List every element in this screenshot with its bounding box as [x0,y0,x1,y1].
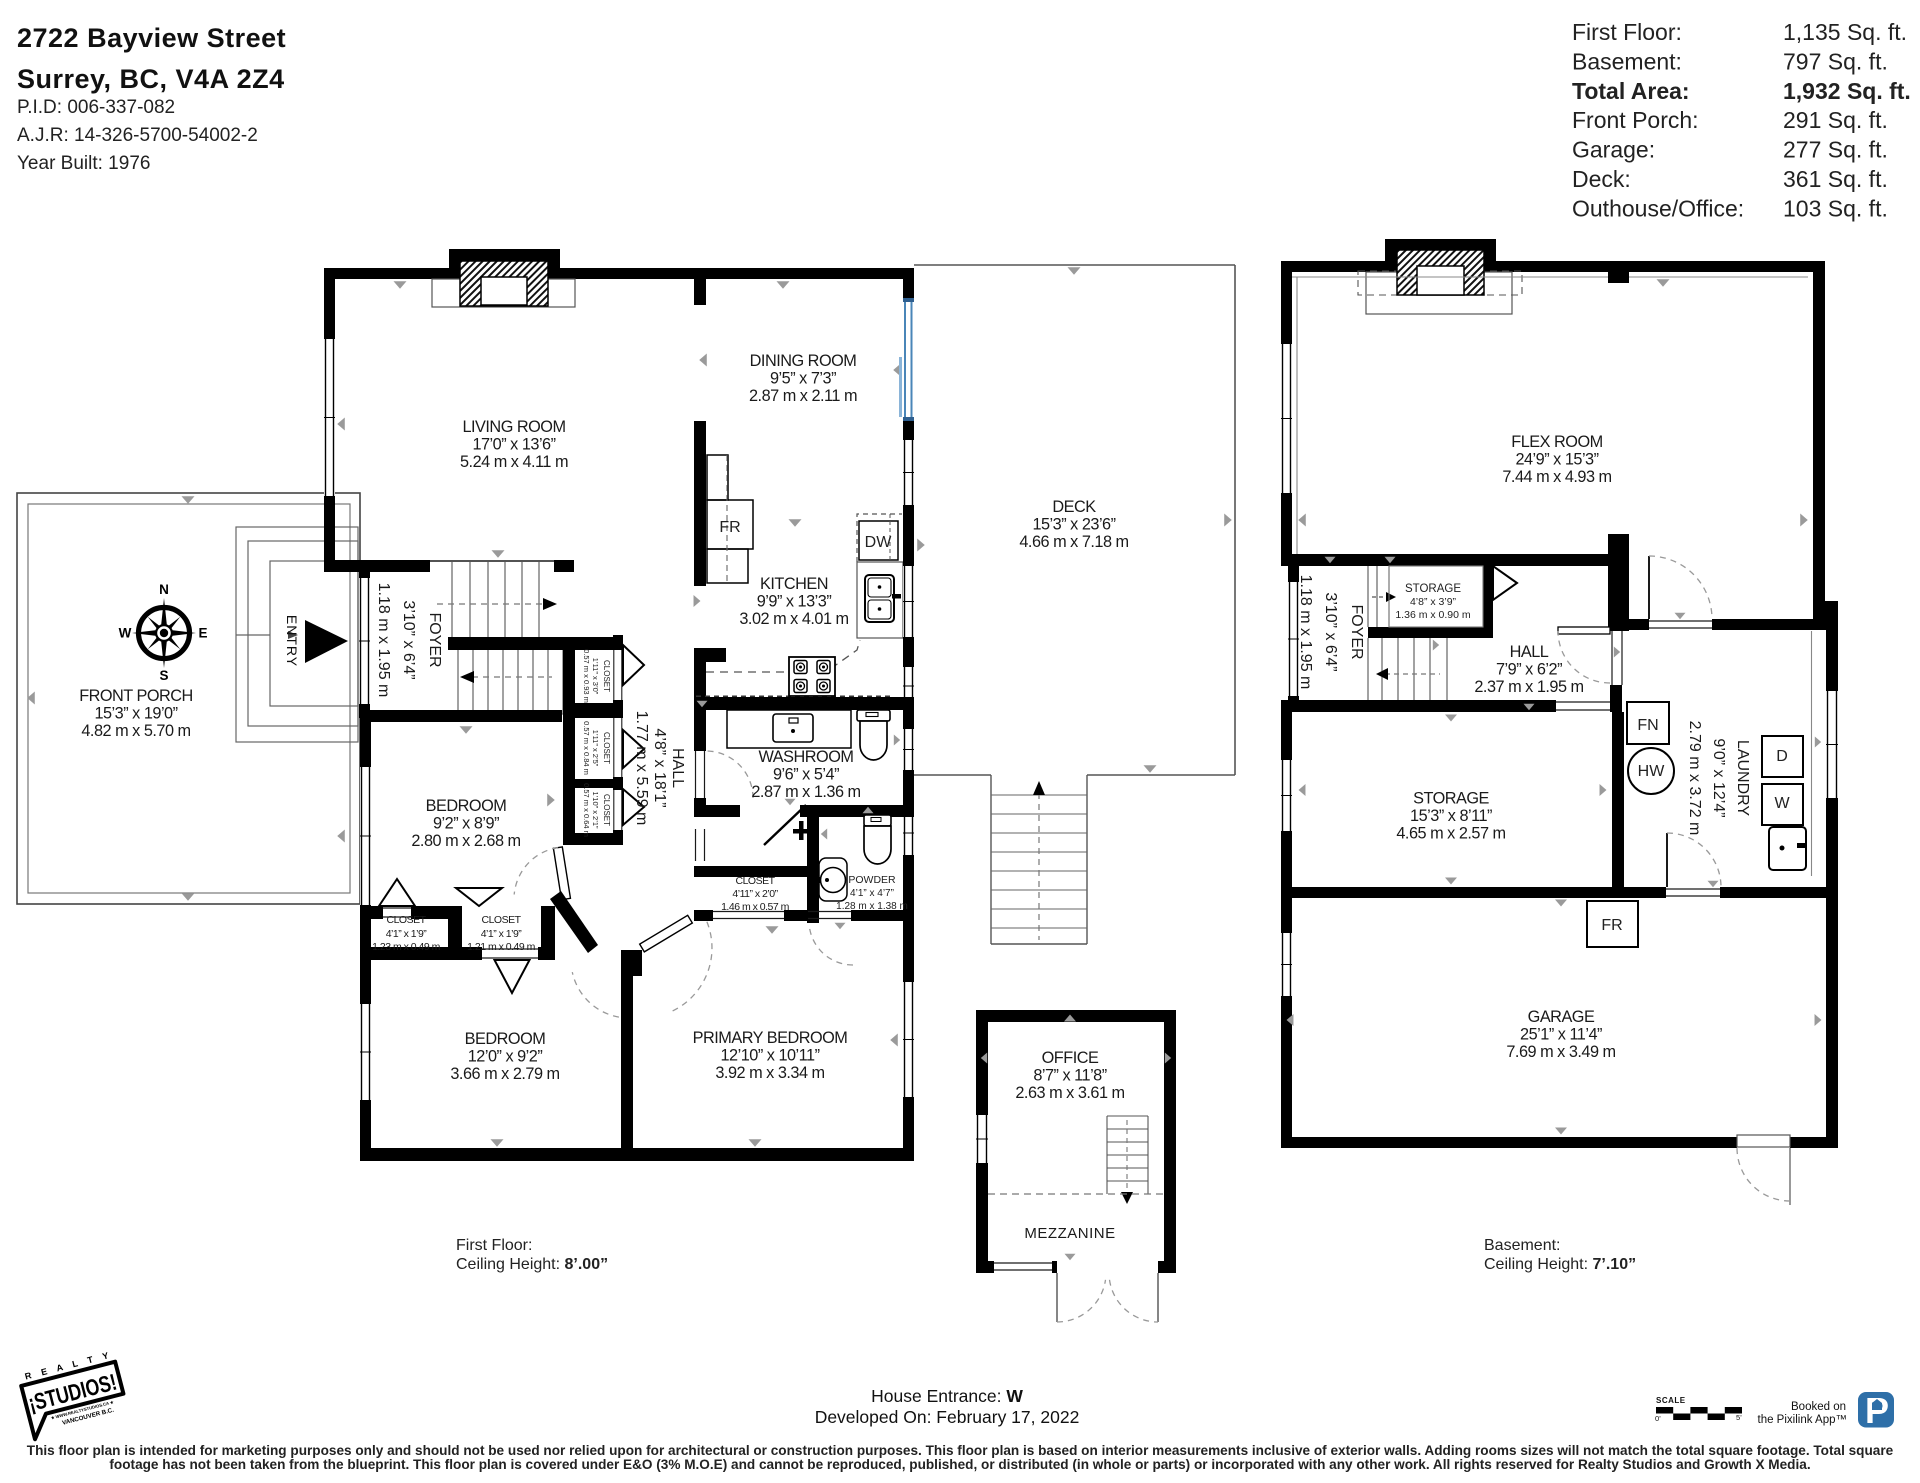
svg-text:15’3” x 19’0”: 15’3” x 19’0” [94,705,177,723]
svg-text:POWDER: POWDER [848,874,896,886]
svg-text:BEDROOM: BEDROOM [465,1030,546,1048]
svg-text:12’0” x 9’2”: 12’0” x 9’2” [468,1048,543,1066]
svg-text:1’11” x 2’5”: 1’11” x 2’5” [591,730,600,767]
svg-text:0.57 m x 0.93 m: 0.57 m x 0.93 m [582,649,591,703]
svg-text:S: S [159,668,168,683]
svg-text:FOYER: FOYER [426,612,443,667]
svg-text:A.J.R: 14-326-5700-54002-2: A.J.R: 14-326-5700-54002-2 [17,125,258,146]
svg-text:2722 Bayview Street: 2722 Bayview Street [17,23,286,53]
svg-text:FOYER: FOYER [1348,604,1365,659]
svg-text:2.79 m x 3.72 m: 2.79 m x 3.72 m [1686,721,1703,836]
svg-text:1.36 m x 0.90 m: 1.36 m x 0.90 m [1395,609,1471,621]
svg-text:STORAGE: STORAGE [1413,790,1489,808]
svg-text:0’: 0’ [1655,1414,1661,1423]
svg-text:15’3” x 8’11”: 15’3” x 8’11” [1410,807,1492,825]
svg-text:9’0” x 12’4”: 9’0” x 12’4” [1710,738,1727,817]
svg-text:DECK: DECK [1052,498,1096,516]
svg-text:9’6” x 5’4”: 9’6” x 5’4” [773,766,839,784]
svg-text:24’9” x 15’3”: 24’9” x 15’3” [1515,451,1598,469]
svg-text:797 Sq. ft.: 797 Sq. ft. [1783,48,1888,74]
svg-text:House Entrance: W: House Entrance: W [871,1386,1023,1406]
svg-text:footage has not been taken fro: footage has not been taken from the blue… [109,1457,1810,1472]
svg-text:4.82 m x 5.70 m: 4.82 m x 5.70 m [81,722,190,740]
svg-text:0.57 m x 0.84 m: 0.57 m x 0.84 m [582,721,591,775]
svg-text:5’: 5’ [1736,1413,1742,1422]
svg-text:277 Sq. ft.: 277 Sq. ft. [1783,137,1888,163]
svg-text:P: P [1865,1390,1889,1431]
svg-text:Deck:: Deck: [1572,166,1631,192]
svg-text:STORAGE: STORAGE [1405,583,1461,595]
svg-text:3.02 m x 4.01 m: 3.02 m x 4.01 m [739,610,848,628]
svg-text:4’1” x 1’9”: 4’1” x 1’9” [481,928,523,940]
svg-text:3’10” x 6’4”: 3’10” x 6’4” [400,600,417,679]
svg-text:291 Sq. ft.: 291 Sq. ft. [1783,107,1888,133]
svg-text:4’1” x 4’7”: 4’1” x 4’7” [850,888,894,899]
svg-text:4’1” x 1’9”: 4’1” x 1’9” [386,928,428,940]
svg-text:9’9” x 13’3”: 9’9” x 13’3” [757,593,832,611]
svg-text:KITCHEN: KITCHEN [760,575,828,593]
svg-text:DINING ROOM: DINING ROOM [750,352,857,370]
svg-text:Surrey, BC, V4A 2Z4: Surrey, BC, V4A 2Z4 [17,64,285,94]
svg-text:E: E [198,626,207,641]
svg-text:1.18 m x 1.95 m: 1.18 m x 1.95 m [1297,575,1314,690]
svg-text:CLOSET: CLOSET [602,794,611,826]
svg-text:HW: HW [1638,763,1666,780]
svg-text:First Floor:: First Floor: [1572,19,1682,45]
svg-text:Total Area:: Total Area: [1572,78,1690,104]
svg-text:CLOSET: CLOSET [481,914,521,926]
svg-text:7.69 m x 3.49 m: 7.69 m x 3.49 m [1506,1043,1615,1061]
svg-text:2.80 m x 2.68 m: 2.80 m x 2.68 m [411,832,520,850]
svg-text:2.63 m x 3.61 m: 2.63 m x 3.61 m [1015,1084,1124,1102]
svg-text:1.77 m x 5.59 m: 1.77 m x 5.59 m [633,711,650,826]
svg-text:First Floor:: First Floor: [456,1237,532,1254]
svg-text:CLOSET: CLOSET [386,914,426,926]
svg-text:4’11” x 2’0”: 4’11” x 2’0” [732,888,778,900]
svg-text:1’10” x 2’1”: 1’10” x 2’1” [591,791,600,829]
svg-text:FLEX ROOM: FLEX ROOM [1511,433,1602,451]
svg-text:This floor plan is intended fo: This floor plan is intended for marketin… [27,1443,1894,1458]
svg-text:361 Sq. ft.: 361 Sq. ft. [1783,166,1888,192]
svg-text:1,932 Sq. ft.: 1,932 Sq. ft. [1783,78,1911,104]
svg-text:ENTRY: ENTRY [284,615,300,667]
svg-text:2.37 m x 1.95 m: 2.37 m x 1.95 m [1474,678,1583,696]
svg-text:1.23 m x 0.49 m: 1.23 m x 0.49 m [372,941,441,953]
svg-text:LIVING ROOM: LIVING ROOM [462,418,565,436]
svg-text:Front Porch:: Front Porch: [1572,107,1699,133]
svg-text:Year Built: 1976: Year Built: 1976 [17,153,150,174]
svg-text:17’0” x 13’6”: 17’0” x 13’6” [472,436,555,454]
svg-text:4.65 m x 2.57 m: 4.65 m x 2.57 m [1396,825,1505,843]
svg-text:FR: FR [1601,917,1622,934]
svg-text:4’8” x 3’9”: 4’8” x 3’9” [1410,596,1457,608]
svg-text:2.87 m x 2.11 m: 2.87 m x 2.11 m [749,387,857,405]
svg-text:Ceiling Height: 8’.00”: Ceiling Height: 8’.00” [456,1256,608,1273]
svg-text:the Pixilink App™: the Pixilink App™ [1758,1414,1848,1426]
svg-text:0.57 m x 0.64 m: 0.57 m x 0.64 m [582,783,591,837]
svg-text:W: W [1774,795,1790,812]
svg-text:HALL: HALL [1510,643,1549,661]
svg-text:1.18 m x 1.95 m: 1.18 m x 1.95 m [375,583,392,698]
svg-text:LAUNDRY: LAUNDRY [1734,740,1751,817]
svg-text:25’1” x 11’4”: 25’1” x 11’4” [1520,1026,1602,1044]
svg-text:Booked on: Booked on [1791,1401,1846,1413]
svg-text:DW: DW [865,534,893,551]
svg-text:FRONT PORCH: FRONT PORCH [79,687,193,705]
svg-text:12’10” x 10’11”: 12’10” x 10’11” [721,1047,820,1065]
svg-text:D: D [1776,748,1788,765]
svg-text:3.92 m x 3.34 m: 3.92 m x 3.34 m [715,1064,824,1082]
svg-text:Outhouse/Office:: Outhouse/Office: [1572,195,1744,221]
svg-text:1.21 m x 0.49 m: 1.21 m x 0.49 m [467,941,536,953]
svg-text:7.44 m x 4.93 m: 7.44 m x 4.93 m [1502,468,1611,486]
svg-text:Ceiling Height: 7’.10”: Ceiling Height: 7’.10” [1484,1256,1636,1273]
svg-text:4’8” x 18’1”: 4’8” x 18’1” [651,728,668,807]
svg-text:15’3” x 23’6”: 15’3” x 23’6” [1032,516,1115,534]
svg-text:OFFICE: OFFICE [1042,1049,1099,1067]
svg-text:1,135 Sq. ft.: 1,135 Sq. ft. [1783,19,1907,45]
svg-text:P.I.D: 006-337-082: P.I.D: 006-337-082 [17,97,175,118]
svg-text:Garage:: Garage: [1572,137,1655,163]
svg-text:5.24 m x 4.11 m: 5.24 m x 4.11 m [460,453,568,471]
svg-text:FR: FR [719,519,740,536]
svg-text:CLOSET: CLOSET [602,732,611,764]
svg-text:8’7” x 11’8”: 8’7” x 11’8” [1033,1067,1106,1085]
svg-text:2.87 m x 1.36 m: 2.87 m x 1.36 m [751,783,860,801]
svg-text:4.66 m x 7.18 m: 4.66 m x 7.18 m [1019,533,1128,551]
svg-text:7’9” x 6’2”: 7’9” x 6’2” [1496,661,1562,679]
svg-text:9’5” x 7’3”: 9’5” x 7’3” [770,370,836,388]
svg-text:CLOSET: CLOSET [735,875,775,887]
svg-text:PRIMARY BEDROOM: PRIMARY BEDROOM [693,1029,848,1047]
svg-text:WASHROOM: WASHROOM [759,748,854,766]
svg-text:Basement:: Basement: [1484,1237,1560,1254]
svg-text:Basement:: Basement: [1572,48,1682,74]
svg-text:Developed On: February 17, 202: Developed On: February 17, 2022 [815,1407,1080,1427]
svg-text:3.66 m x 2.79 m: 3.66 m x 2.79 m [450,1065,559,1083]
svg-text:3’10” x 6’4”: 3’10” x 6’4” [1322,592,1339,671]
svg-text:HALL: HALL [669,748,686,788]
svg-text:103 Sq. ft.: 103 Sq. ft. [1783,195,1888,221]
svg-text:FN: FN [1637,717,1658,734]
svg-text:GARAGE: GARAGE [1528,1008,1595,1026]
svg-text:BEDROOM: BEDROOM [426,797,507,815]
svg-text:9’2” x 8’9”: 9’2” x 8’9” [433,815,499,833]
svg-text:MEZZANINE: MEZZANINE [1024,1225,1115,1242]
svg-text:1’11” x 3’0”: 1’11” x 3’0” [591,658,600,695]
svg-text:SCALE: SCALE [1656,1396,1686,1405]
svg-text:W: W [119,626,132,641]
svg-text:N: N [159,582,169,597]
svg-text:CLOSET: CLOSET [602,660,611,692]
